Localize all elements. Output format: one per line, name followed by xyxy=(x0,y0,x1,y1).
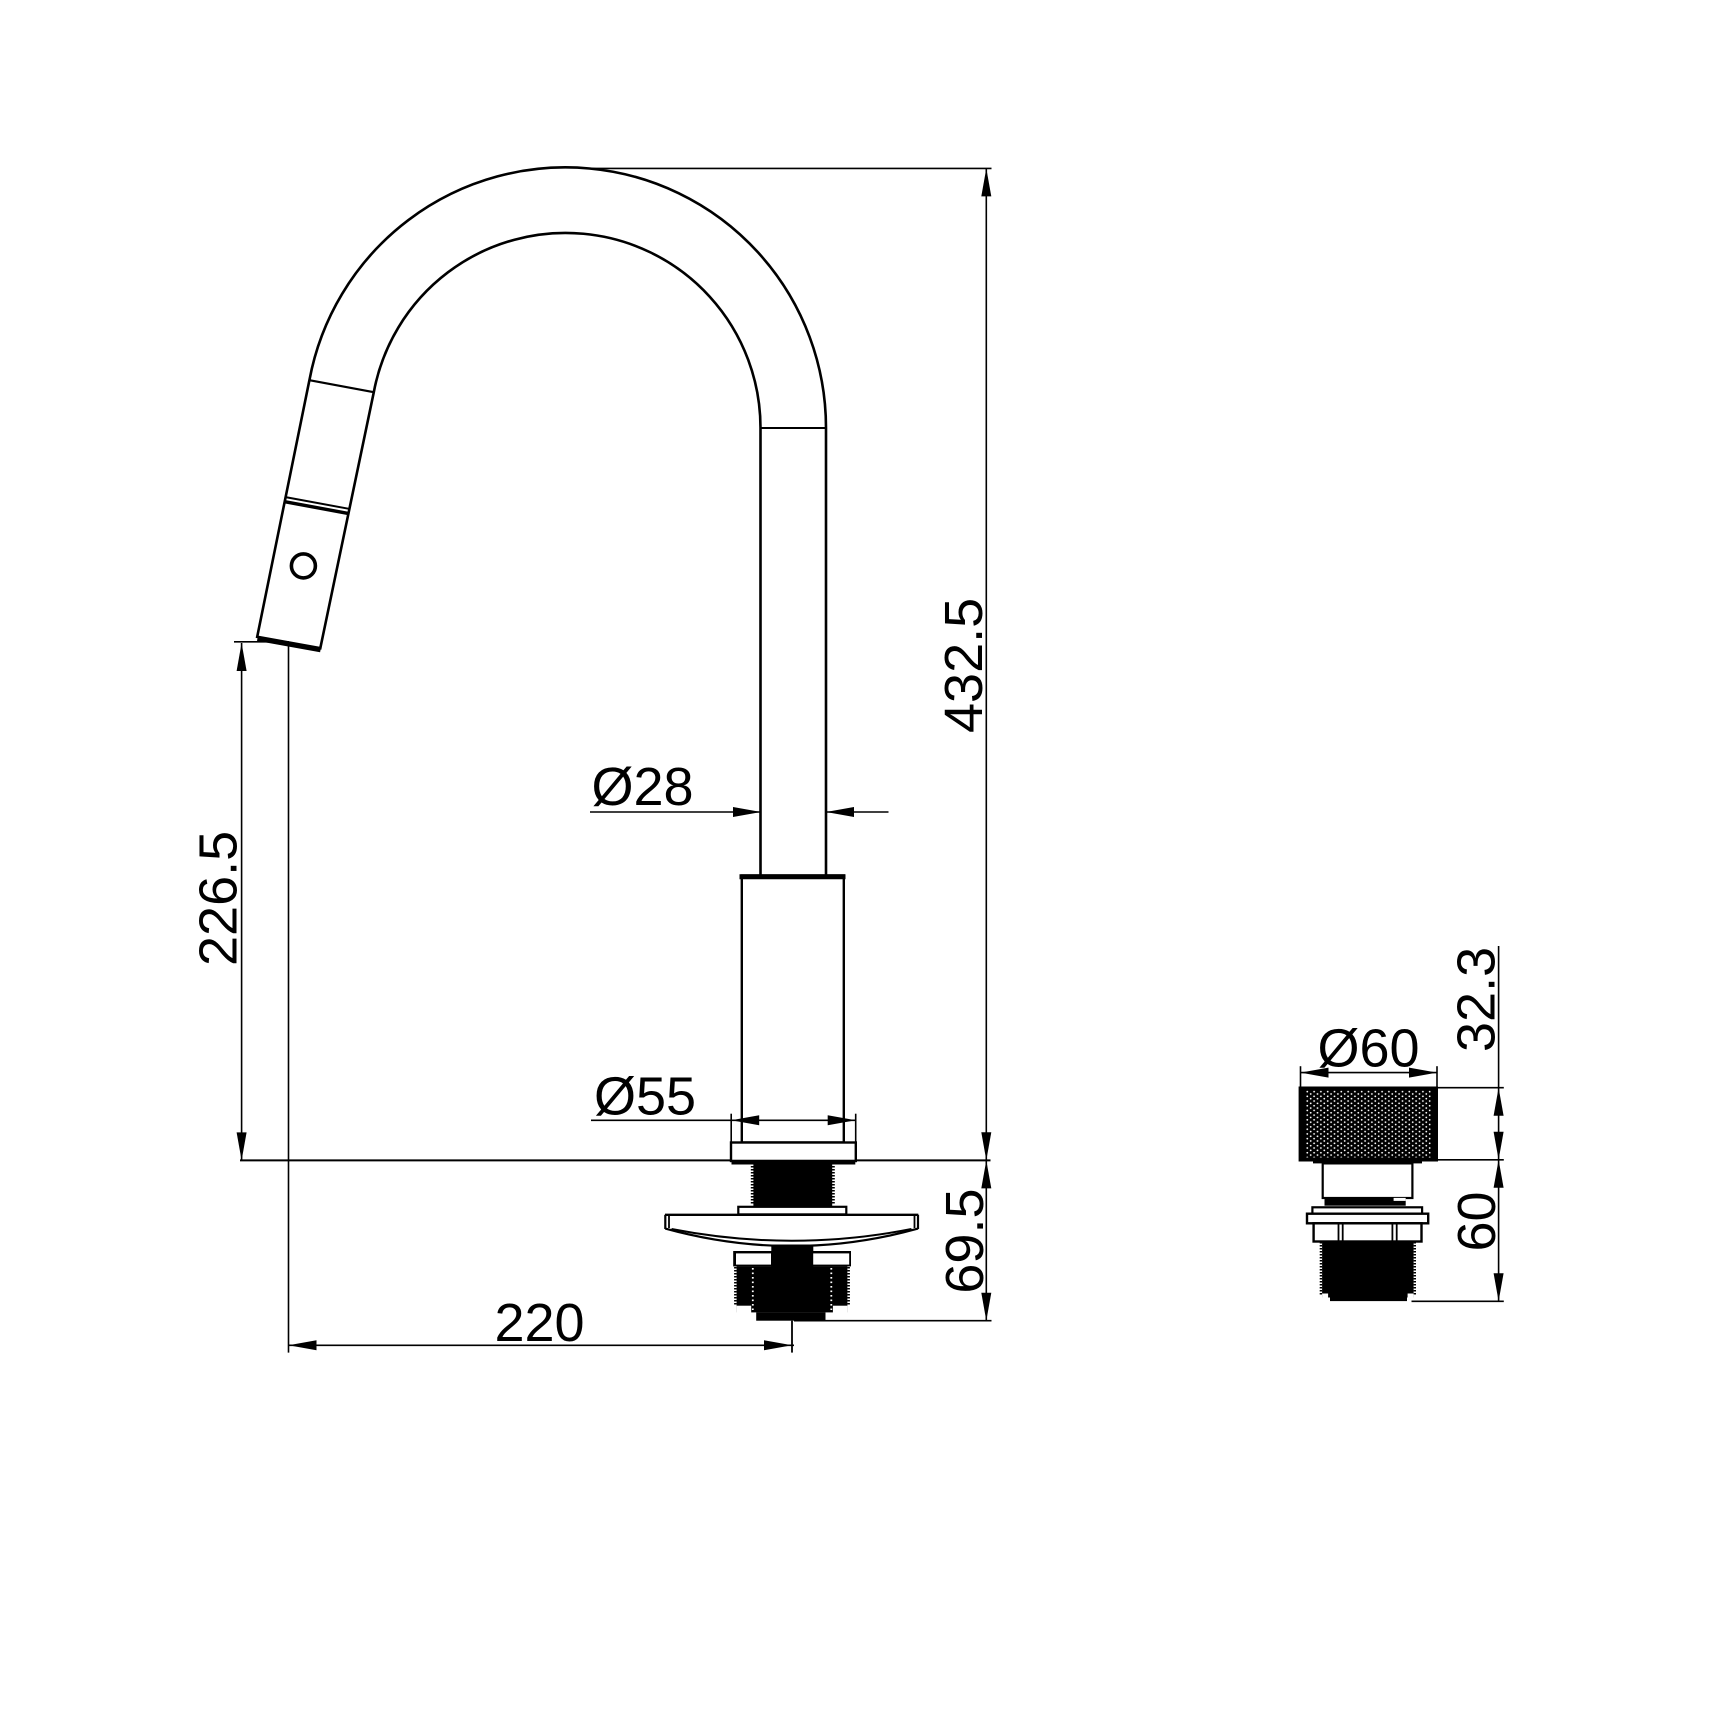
svg-text:Ø28: Ø28 xyxy=(591,757,693,817)
svg-text:Ø55: Ø55 xyxy=(594,1067,696,1127)
svg-text:226.5: 226.5 xyxy=(189,831,249,966)
svg-text:69.5: 69.5 xyxy=(935,1188,995,1293)
svg-text:32.3: 32.3 xyxy=(1447,947,1507,1052)
svg-text:220: 220 xyxy=(494,1293,584,1353)
svg-text:432.5: 432.5 xyxy=(934,598,994,733)
svg-text:60: 60 xyxy=(1447,1191,1507,1251)
svg-text:Ø60: Ø60 xyxy=(1317,1019,1419,1079)
